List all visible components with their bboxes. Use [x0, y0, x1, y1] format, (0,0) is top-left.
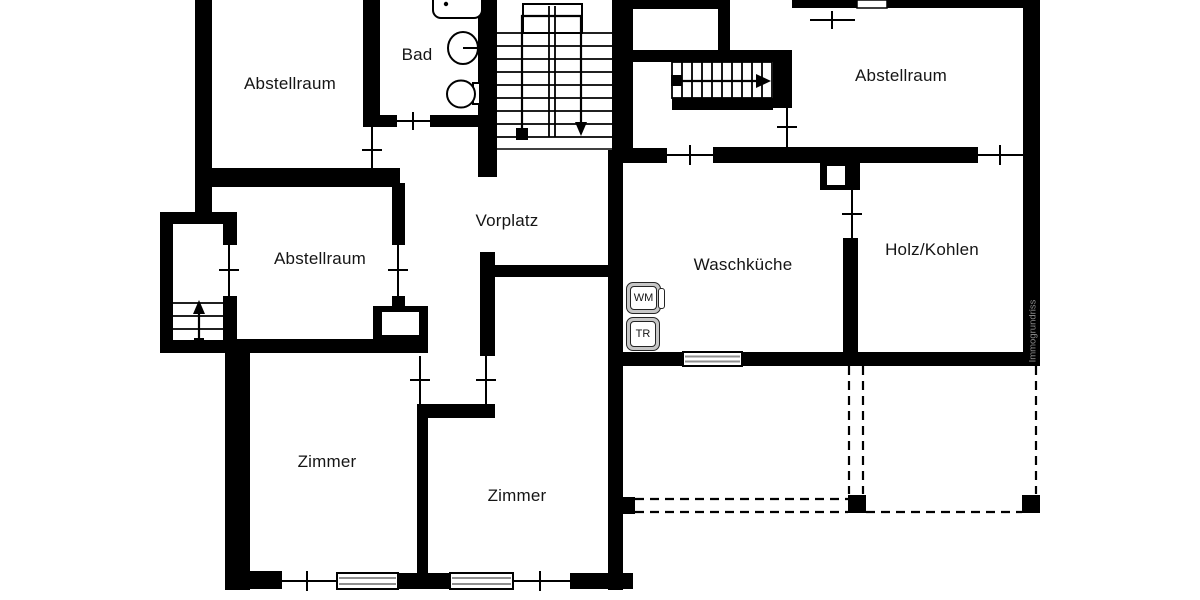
stair-landing: [523, 4, 582, 33]
bathroom-fixtures: [433, 0, 482, 108]
stair-direction-arrow-up: [193, 300, 205, 348]
dryer: TR: [626, 317, 660, 351]
terrace-dashed-outline: [635, 366, 1036, 512]
floor-plan-drawing: [0, 0, 1200, 600]
room-label-bad: Bad: [402, 45, 433, 65]
door-tick: [282, 571, 337, 591]
washing-machine-label: WM: [630, 286, 657, 310]
door-tick: [777, 108, 797, 147]
stair-direction-arrow-right: [671, 74, 771, 88]
room-label-zimmer-bottom-left: Zimmer: [298, 452, 357, 472]
room-label-abstellraum-top-left: Abstellraum: [244, 74, 336, 94]
window: [683, 352, 742, 366]
door-tick: [667, 145, 713, 165]
door-tick: [410, 356, 430, 404]
door-tick: [397, 112, 430, 130]
room-label-holz-kohlen: Holz/Kohlen: [885, 240, 979, 260]
stair-direction-arrow-down: [516, 16, 587, 140]
door-tick: [513, 571, 570, 591]
door-tick: [219, 245, 239, 296]
window-tick: [810, 11, 855, 29]
toilet-icon: [447, 81, 480, 108]
chimney-flue-left: [382, 312, 419, 335]
washing-machine-door: [658, 288, 665, 309]
washing-machine: WM: [626, 282, 661, 314]
window: [450, 573, 513, 589]
stair-main-u: [497, 4, 612, 140]
bathtub-icon: [433, 0, 482, 18]
door-tick: [842, 190, 862, 238]
door-tick: [978, 145, 1023, 165]
room-label-abstellraum-top-right: Abstellraum: [855, 66, 947, 86]
door-tick: [362, 127, 382, 173]
chimney-flue-right: [827, 166, 845, 185]
window: [337, 573, 398, 589]
door-tick: [388, 245, 408, 296]
room-label-zimmer-bottom-middle: Zimmer: [488, 486, 547, 506]
sink-icon: [448, 32, 479, 64]
room-label-vorplatz: Vorplatz: [475, 211, 538, 231]
window: [857, 0, 887, 8]
dryer-label: TR: [630, 321, 656, 347]
floor-plan: Abstellraum Bad Abstellraum Abstellraum …: [0, 0, 1200, 600]
door-tick: [476, 356, 496, 404]
stair-entrance-run: [671, 62, 772, 98]
room-label-abstellraum-mid-left: Abstellraum: [274, 249, 366, 269]
room-label-waschkueche: Waschküche: [694, 255, 793, 275]
stair-steps: [497, 6, 612, 137]
watermark-immogrundriss: Immogrundriss: [1028, 300, 1039, 363]
